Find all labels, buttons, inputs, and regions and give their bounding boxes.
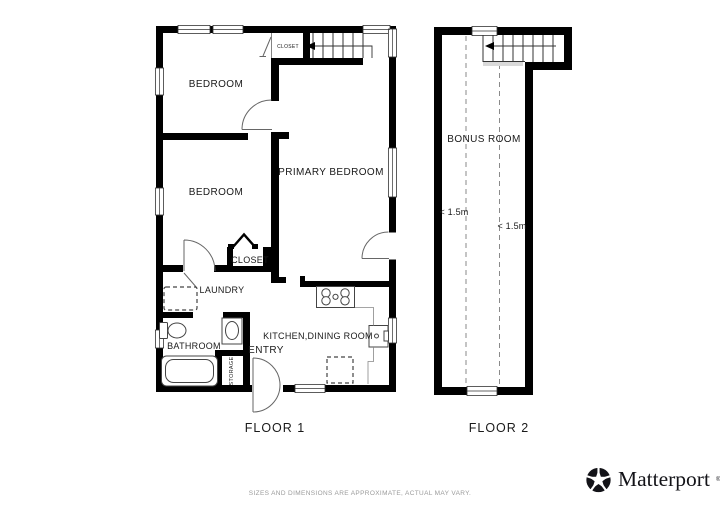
- floor1-plan: BEDROOM BEDROOM PRIMARY BEDROOM CLOSET C…: [155, 25, 397, 435]
- matterport-logo: Matterport®: [585, 465, 720, 495]
- room-label-bedroom-mid: BEDROOM: [189, 187, 243, 198]
- burner: [322, 297, 330, 305]
- floor2-stair-landing: [483, 62, 523, 67]
- laundry-door-leaf: [184, 273, 197, 288]
- floor2-plan: BONUS ROOM < 1.5m < 1.5m FLOOR 2: [434, 26, 572, 435]
- room-label-bonus-room: BONUS ROOM: [447, 134, 520, 145]
- bathtub-inner: [166, 360, 214, 383]
- kitchen-sink-drain: [375, 334, 379, 338]
- room-label-laundry: LAUNDRY: [200, 285, 245, 295]
- burner: [341, 289, 349, 297]
- toilet-tank: [160, 323, 168, 339]
- room-label-closet-top: CLOSET: [277, 44, 299, 50]
- room-label-kitchen-dining: KITCHEN,DINING ROOM: [263, 331, 373, 341]
- burner: [322, 289, 330, 297]
- room-label-storage: STORAGE: [229, 357, 235, 386]
- matterport-pinwheel-icon: [585, 465, 612, 495]
- burner: [341, 297, 349, 305]
- floor2-windows: [467, 26, 497, 395]
- closet-mid-bifold-door: [233, 235, 255, 248]
- dishwasher: [327, 357, 353, 383]
- room-label-bedroom-top: BEDROOM: [189, 79, 243, 90]
- floor1-caption: FLOOR 1: [245, 421, 306, 435]
- floor2-caption: FLOOR 2: [469, 421, 530, 435]
- kitchen-faucet: [384, 331, 389, 341]
- room-label-closet-mid: CLOSET: [231, 255, 269, 265]
- floorplan-drawing: BEDROOM BEDROOM PRIMARY BEDROOM CLOSET C…: [0, 0, 720, 508]
- registered-trademark-mark: ®: [716, 477, 720, 483]
- ceiling-note-right: < 1.5m: [498, 221, 527, 231]
- bedroom-mid-door: [184, 240, 215, 271]
- matterport-wordmark: Matterport: [618, 469, 710, 491]
- room-label-entry: ENTRY: [248, 345, 284, 356]
- floor2-window-midlines: [467, 31, 497, 391]
- burner-small: [333, 294, 338, 299]
- room-label-primary-bedroom: PRIMARY BEDROOM: [278, 167, 384, 178]
- bathroom-sink-basin: [226, 322, 239, 340]
- toilet-bowl: [168, 323, 186, 338]
- bedroom-top-door: [242, 100, 272, 130]
- washer: [164, 287, 197, 310]
- floor2-stairs-up-arrow-icon: [485, 42, 494, 50]
- ceiling-note-left: < 1.5m: [440, 207, 469, 217]
- closet-top-door-leaf: [260, 37, 272, 57]
- primary-bedroom-exterior-door: [362, 232, 389, 259]
- room-label-bathroom: BATHROOM: [167, 341, 221, 351]
- floor1-stairs: [313, 33, 372, 58]
- floorplan-page: BEDROOM BEDROOM PRIMARY BEDROOM CLOSET C…: [0, 0, 720, 508]
